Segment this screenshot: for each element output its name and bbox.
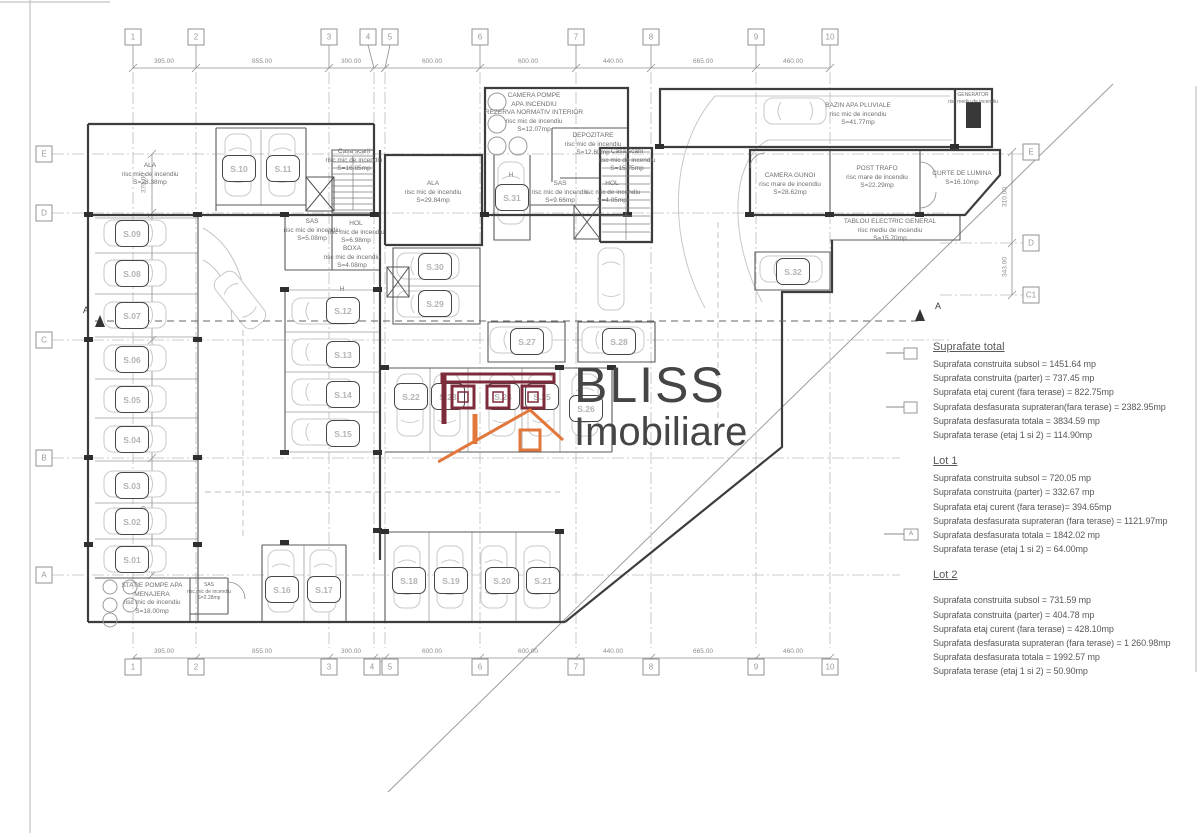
- room-label-camera-gunoi: CAMERA GUNOI risc mare de incendiu S=28.…: [759, 172, 821, 198]
- parking-spot-label: S.19: [434, 567, 468, 594]
- room-label-bazin: BAZIN APA PLUVIALE risc mic de incendiu …: [825, 102, 891, 128]
- dimension-label: 460.00: [783, 58, 803, 65]
- parking-spot-label: S.15: [326, 420, 360, 447]
- parking-spot-label: S.02: [115, 508, 149, 535]
- room-label-casa-scarii-1: Casa scarii risc mic de incendiu S=16.85…: [325, 148, 382, 174]
- dimension-label: 600.00: [422, 648, 442, 655]
- handicap-mark: H: [508, 172, 513, 179]
- grid-bubble: 1: [125, 659, 142, 676]
- dimension-label: 600.00: [518, 648, 538, 655]
- dimension-label: 310.00: [1002, 187, 1009, 207]
- grid-bubble: C: [36, 332, 53, 349]
- grid-bubble: E: [36, 146, 53, 163]
- parking-spot-label: S.07: [115, 302, 149, 329]
- area-summary-lot1-body: Suprafata construita subsol = 720.05 mp …: [933, 471, 1195, 556]
- parking-spot-label: S.31: [495, 184, 529, 211]
- parking-spot-label: S.01: [115, 546, 149, 573]
- grid-bubble: A: [36, 567, 53, 584]
- room-label-statie-pompe: STATIE POMPE APA MENAJERA risc mic de in…: [121, 582, 182, 616]
- text-leaders: [884, 348, 918, 540]
- parking-spot-label: S.03: [115, 472, 149, 499]
- section-marker-label: A: [909, 531, 913, 537]
- room-label-tablou: TABLOU ELECTRIC GENERAL risc mediu de in…: [844, 218, 936, 244]
- grid-bubble: 2: [188, 29, 205, 46]
- floor-plan-page: 1 2 3 4 5 6 7 8 9 10 1 2 3 4 5 6 7 8 9 1…: [0, 0, 1200, 833]
- parking-spot-label: S.20: [485, 567, 519, 594]
- room-label-sas-2: SAS risc mic de incendiu S=9.66mp: [531, 180, 588, 206]
- dimension-label: 855.00: [252, 648, 272, 655]
- parking-spot-label: S.27: [510, 328, 544, 355]
- room-label-post-trafo: POST TRAFO risc mare de incendiu S=22.29…: [846, 165, 908, 191]
- parking-spot-label: S.17: [307, 576, 341, 603]
- grid-bubble: C1: [1023, 287, 1040, 304]
- dimension-label: 395.00: [154, 58, 174, 65]
- parking-spot-label: S.09: [115, 220, 149, 247]
- room-label-boxa: BOXA risc mic de incendiu S=4.08mp: [323, 245, 380, 271]
- grid-bubble: B: [36, 450, 53, 467]
- dimension-label: 460.00: [783, 648, 803, 655]
- parking-spot-label: S.04: [115, 426, 149, 453]
- parking-spot-label: S.06: [115, 346, 149, 373]
- grid-bubble: 5: [382, 659, 399, 676]
- grid-bubble: 10: [822, 659, 839, 676]
- grid-bubble: 9: [748, 659, 765, 676]
- dimension-label: 440.00: [603, 58, 623, 65]
- parking-spot-label: S.29: [418, 290, 452, 317]
- parking-spot-label: S.11: [266, 155, 300, 182]
- dimension-label: 440.00: [603, 648, 623, 655]
- dimension-label: 395.00: [154, 648, 174, 655]
- dimension-label: 665.00: [693, 648, 713, 655]
- dimension-label: 343.00: [1002, 257, 1009, 277]
- logo-houses-icon: [438, 366, 570, 470]
- grid-bubble: 9: [748, 29, 765, 46]
- section-marker-label: A: [83, 305, 89, 315]
- grid-bubble: 7: [568, 659, 585, 676]
- logo-text-primary: BLISS: [574, 360, 726, 410]
- dimension-label: 855.00: [252, 58, 272, 65]
- area-summary-lot2-body: Suprafata construita subsol = 731.59 mp …: [933, 593, 1195, 678]
- parking-spot-label: S.22: [394, 383, 428, 410]
- grid-bubble: 2: [188, 659, 205, 676]
- grid-bubble: 6: [472, 29, 489, 46]
- grid-bubble: 3: [321, 29, 338, 46]
- room-label-camera-pompe: CAMERA POMPE APA INCENDIU REZERVA NORMAT…: [485, 92, 583, 135]
- grid-bubble: 4: [364, 659, 381, 676]
- parking-spot-label: S.10: [222, 155, 256, 182]
- grid-bubble: 10: [822, 29, 839, 46]
- section-marker-label: A: [935, 301, 941, 311]
- grid-bubble: 5: [382, 29, 399, 46]
- room-label-generator: GENERATOR risc mediu de incendiu: [948, 92, 998, 105]
- grid-bubble: 4: [360, 29, 377, 46]
- area-summary-lot2-heading: Lot 2: [933, 569, 1195, 581]
- handicap-mark: H: [339, 286, 344, 293]
- grid-bubble: D: [36, 205, 53, 222]
- area-summary-total-body: Suprafata construita subsol = 1451.64 mp…: [933, 357, 1195, 442]
- parking-spot-label: S.13: [326, 341, 360, 368]
- dimension-label: 300.00: [341, 648, 361, 655]
- parking-spot-label: S.28: [602, 328, 636, 355]
- area-summary-total-heading: Suprafate total: [933, 341, 1195, 353]
- parking-spot-label: S.12: [326, 297, 360, 324]
- logo-text-secondary: Imobiliare: [574, 412, 747, 452]
- grid-bubble: 7: [568, 29, 585, 46]
- room-label-casa-scarii-2: Casa scarii risc mic de incendiu S=15.75…: [598, 148, 655, 174]
- company-logo: BLISS Imobiliare: [438, 360, 783, 470]
- grid-bubble: 8: [643, 659, 660, 676]
- grid-bubble: 1: [125, 29, 142, 46]
- parking-spot-label: S.16: [265, 576, 299, 603]
- grid-bubble: E: [1023, 144, 1040, 161]
- parking-spot-label: S.08: [115, 260, 149, 287]
- parking-spot-label: S.18: [392, 567, 426, 594]
- room-label-hol-2: HOL risc mic de incendiu S=4.05mp: [583, 180, 640, 206]
- parking-spot-label: S.14: [326, 381, 360, 408]
- dimension-label: 600.00: [422, 58, 442, 65]
- parking-spot-label: S.30: [418, 253, 452, 280]
- room-label-ala-center: ALA risc mic de incendiu S=29.84mp: [404, 180, 461, 206]
- room-label-curte-lumina: CURTE DE LUMINA S=16.10mp: [932, 170, 991, 187]
- room-label-sas-3: SAS risc mic de incendiu S=2.28mp: [187, 582, 231, 602]
- grid-bubble: D: [1023, 235, 1040, 252]
- parking-spot-label: S.32: [776, 258, 810, 285]
- dimension-label: 600.00: [518, 58, 538, 65]
- parking-spot-label: S.05: [115, 386, 149, 413]
- room-label-ala-left: ALA risc mic de incendiu S=28.38mp: [121, 162, 178, 188]
- dimension-label: 665.00: [693, 58, 713, 65]
- grid-bubble: 3: [321, 659, 338, 676]
- grid-bubble: 8: [643, 29, 660, 46]
- parking-spot-label: S.21: [526, 567, 560, 594]
- grid-bubble: 6: [472, 659, 489, 676]
- section-line: [95, 309, 925, 327]
- area-summary-lot1-heading: Lot 1: [933, 455, 1195, 467]
- room-label-hol-1: HOL risc mic de incendiu S=6.98mp: [327, 220, 384, 246]
- area-summary: Suprafate total Suprafata construita sub…: [933, 341, 1195, 692]
- dimension-label: 300.00: [341, 58, 361, 65]
